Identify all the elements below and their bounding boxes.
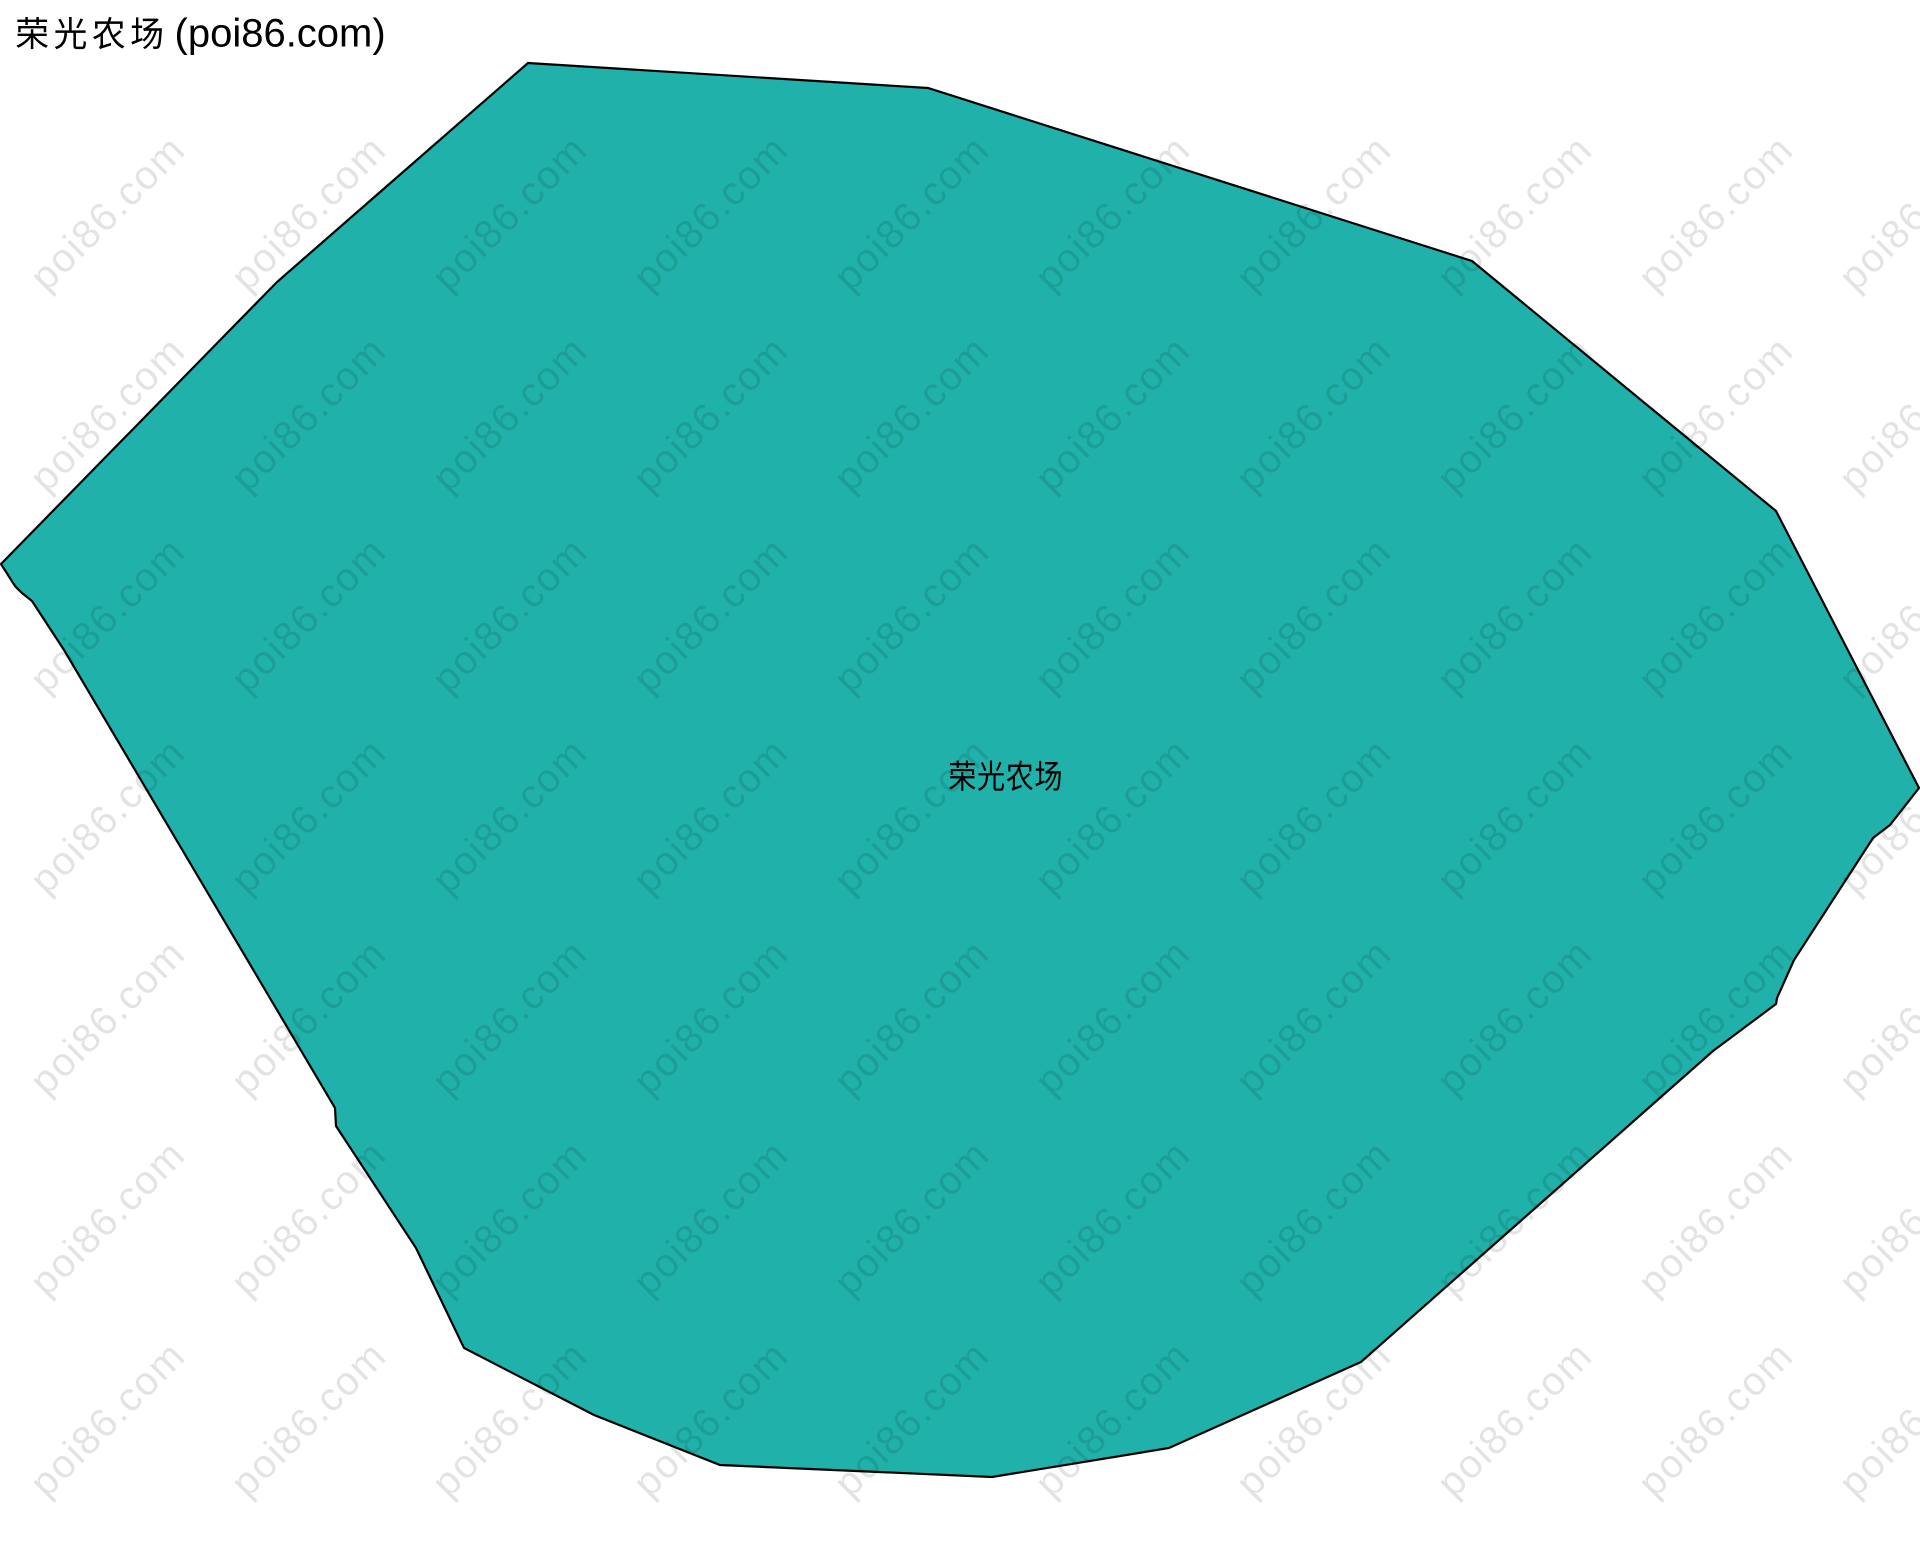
svg-text:poi86.com: poi86.com [22,127,194,299]
svg-text:poi86.com: poi86.com [223,1333,395,1505]
svg-text:poi86.com: poi86.com [22,1132,194,1304]
svg-text:(poi86.com): (poi86.com) [175,12,386,56]
svg-text:poi86.com: poi86.com [1630,127,1802,299]
svg-text:poi86.com: poi86.com [223,1132,395,1304]
svg-text:poi86.com: poi86.com [1831,1333,1920,1505]
svg-text:poi86.com: poi86.com [1831,328,1920,500]
svg-text:poi86.com: poi86.com [1831,529,1920,701]
svg-text:poi86.com: poi86.com [22,1333,194,1505]
svg-text:poi86.com: poi86.com [22,931,194,1103]
svg-text:poi86.com: poi86.com [1429,1333,1601,1505]
svg-text:poi86.com: poi86.com [1831,931,1920,1103]
svg-text:poi86.com: poi86.com [1630,1333,1802,1505]
svg-text:poi86.com: poi86.com [1630,1132,1802,1304]
svg-text:poi86.com: poi86.com [1831,1132,1920,1304]
svg-text:poi86.com: poi86.com [1831,127,1920,299]
svg-text:poi86.com: poi86.com [1429,127,1601,299]
